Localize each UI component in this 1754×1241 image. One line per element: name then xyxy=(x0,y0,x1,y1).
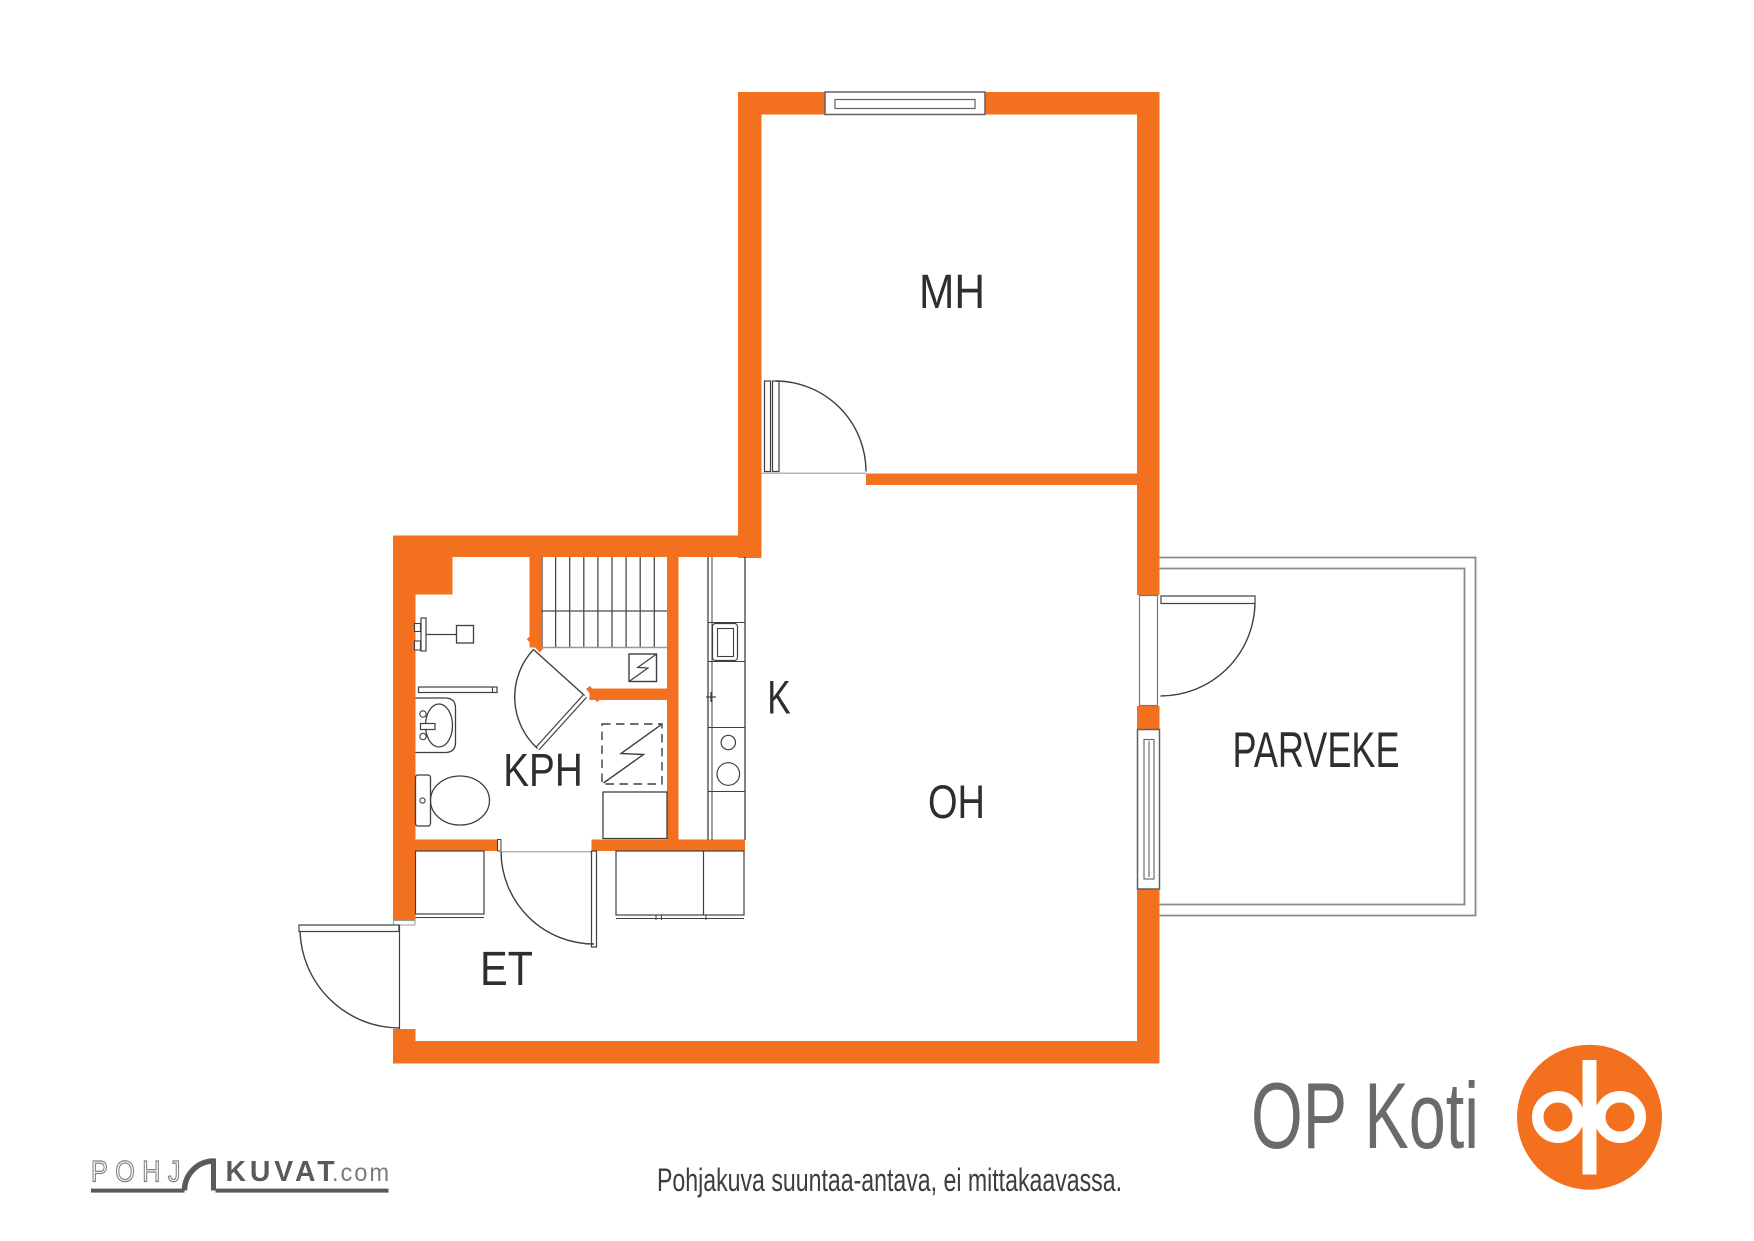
svg-text:PARVEKE: PARVEKE xyxy=(1233,722,1400,778)
svg-text:Pohjakuva suuntaa-antava, ei m: Pohjakuva suuntaa-antava, ei mittakaavas… xyxy=(657,1162,1122,1198)
svg-text:OH: OH xyxy=(928,775,985,828)
svg-text:MH: MH xyxy=(919,266,985,319)
svg-text:ET: ET xyxy=(480,943,533,996)
svg-text:K: K xyxy=(767,671,791,724)
svg-text:.com: .com xyxy=(332,1159,391,1187)
svg-text:KUVAT: KUVAT xyxy=(226,1156,339,1188)
svg-text:KPH: KPH xyxy=(503,744,583,796)
svg-text:OP Koti: OP Koti xyxy=(1251,1063,1479,1168)
svg-text:POHJ: POHJ xyxy=(91,1156,188,1189)
